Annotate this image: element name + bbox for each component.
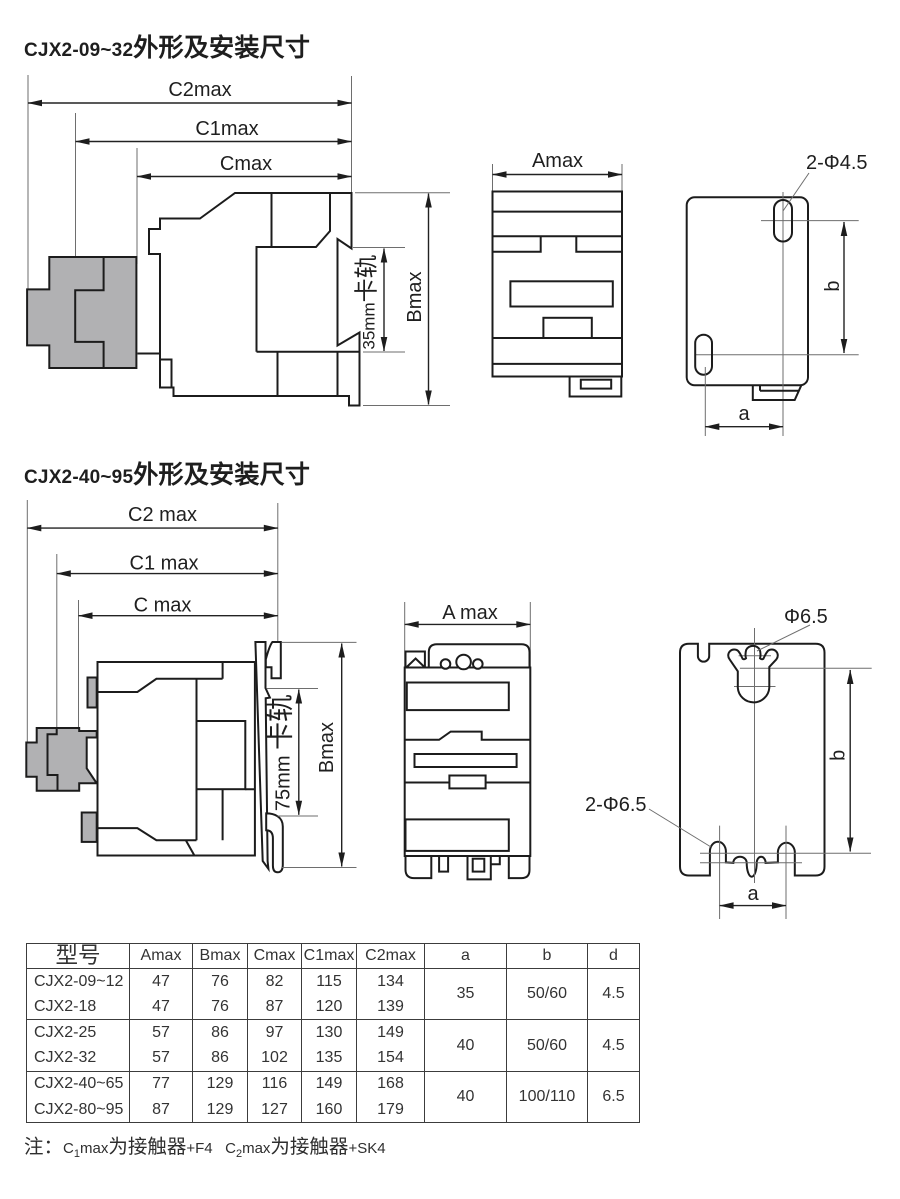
svg-text:C2 max: C2 max [128,504,197,526]
svg-text:2-Φ6.5: 2-Φ6.5 [585,794,647,816]
svg-text:75mm 卡轨: 75mm 卡轨 [265,694,296,811]
svg-text:2-Φ4.5: 2-Φ4.5 [806,152,868,174]
svg-text:Cmax: Cmax [220,153,272,175]
svg-text:C1 max: C1 max [130,553,199,575]
svg-text:C1max: C1max [195,118,258,140]
svg-text:A max: A max [442,602,498,624]
svg-text:b: b [828,750,850,761]
svg-text:Bmax: Bmax [404,271,426,322]
svg-text:a: a [738,403,750,425]
svg-text:Bmax: Bmax [316,722,338,773]
svg-text:Φ6.5: Φ6.5 [784,606,828,628]
svg-text:C2max: C2max [168,79,231,101]
svg-text:b: b [822,280,844,291]
svg-text:C max: C max [134,595,192,617]
svg-text:Amax: Amax [532,150,583,172]
svg-text:a: a [747,883,759,905]
